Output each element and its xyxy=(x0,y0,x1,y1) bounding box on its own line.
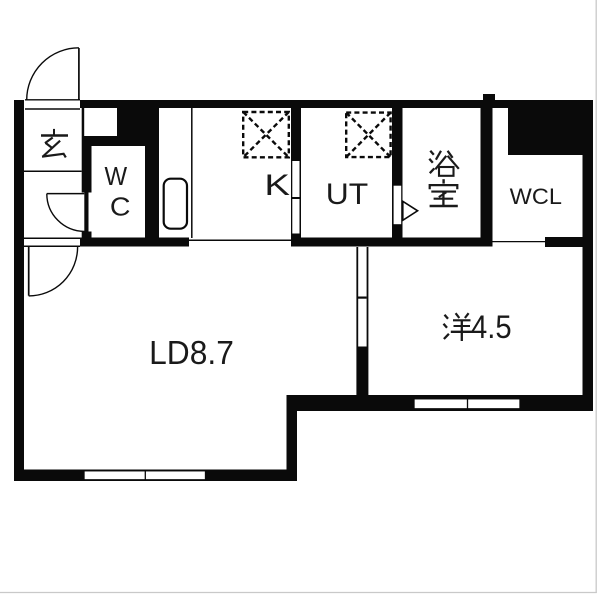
svg-text:K: K xyxy=(264,169,290,202)
svg-text:LD8.7: LD8.7 xyxy=(149,335,234,372)
svg-text:4.5: 4.5 xyxy=(471,310,512,345)
svg-text:C: C xyxy=(110,192,131,221)
svg-text:UT: UT xyxy=(326,178,368,211)
svg-text:WCL: WCL xyxy=(510,184,562,209)
svg-text:W: W xyxy=(104,163,127,191)
